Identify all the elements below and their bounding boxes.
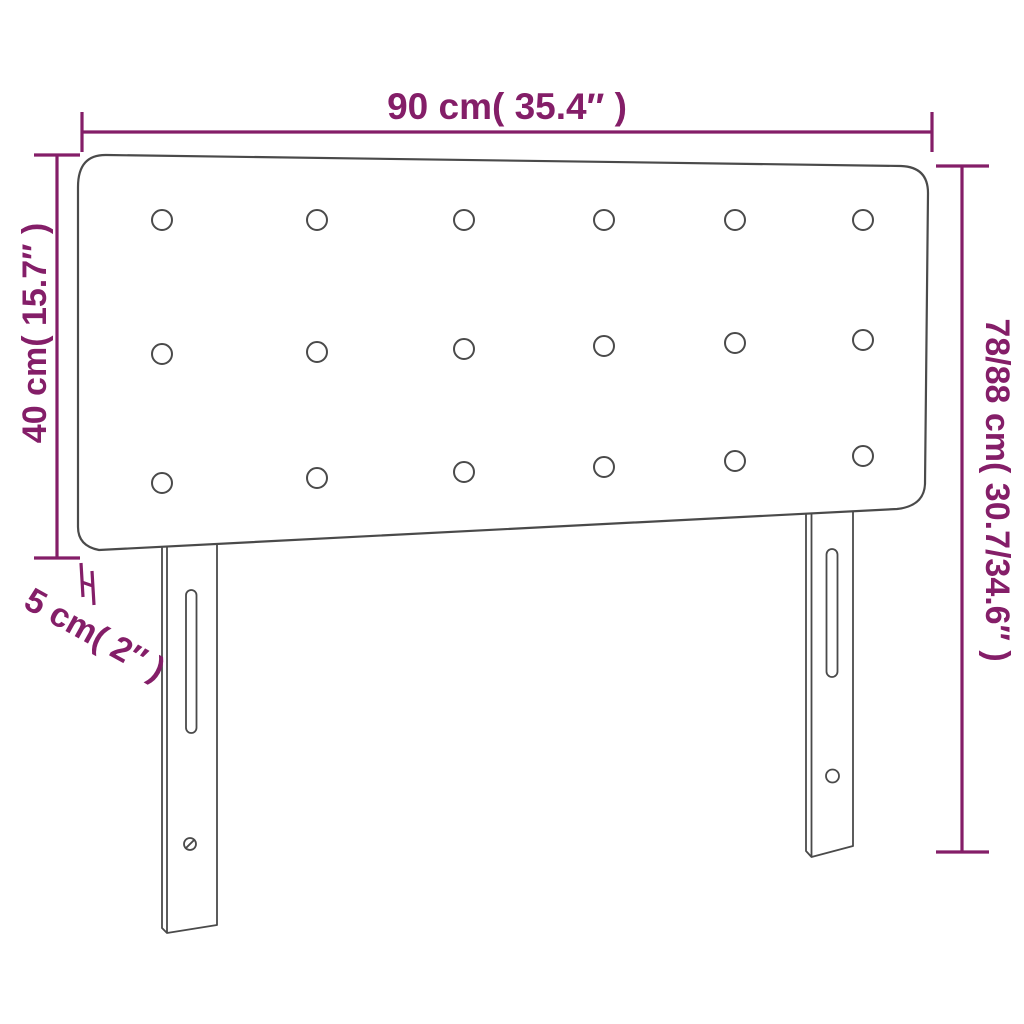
headboard-panel [78, 155, 928, 550]
headboard-dimension-diagram: 90 cm( 35.4″ ) 40 cm( 15.7″ ) 78/88 cm( … [0, 0, 1024, 1024]
left-leg [162, 545, 217, 933]
right-leg [806, 510, 853, 857]
width-dimension-label: 90 cm( 35.4″ ) [387, 86, 627, 127]
right-leg-slot [827, 549, 838, 677]
left-leg-slot [186, 590, 197, 733]
left-leg-outline [162, 545, 217, 933]
right-leg-outline [806, 510, 853, 857]
total-height-dimension-label: 78/88 cm( 30.7/34.6″ ) [978, 318, 1016, 661]
left-leg-screw-icon [184, 838, 196, 850]
product-outline [78, 155, 928, 933]
right-leg-screw-icon [826, 770, 839, 783]
diagram-canvas: 90 cm( 35.4″ ) 40 cm( 15.7″ ) 78/88 cm( … [0, 0, 1024, 1024]
thickness-dimension-mark [81, 563, 94, 605]
panel-height-dimension-label: 40 cm( 15.7″ ) [16, 223, 54, 443]
